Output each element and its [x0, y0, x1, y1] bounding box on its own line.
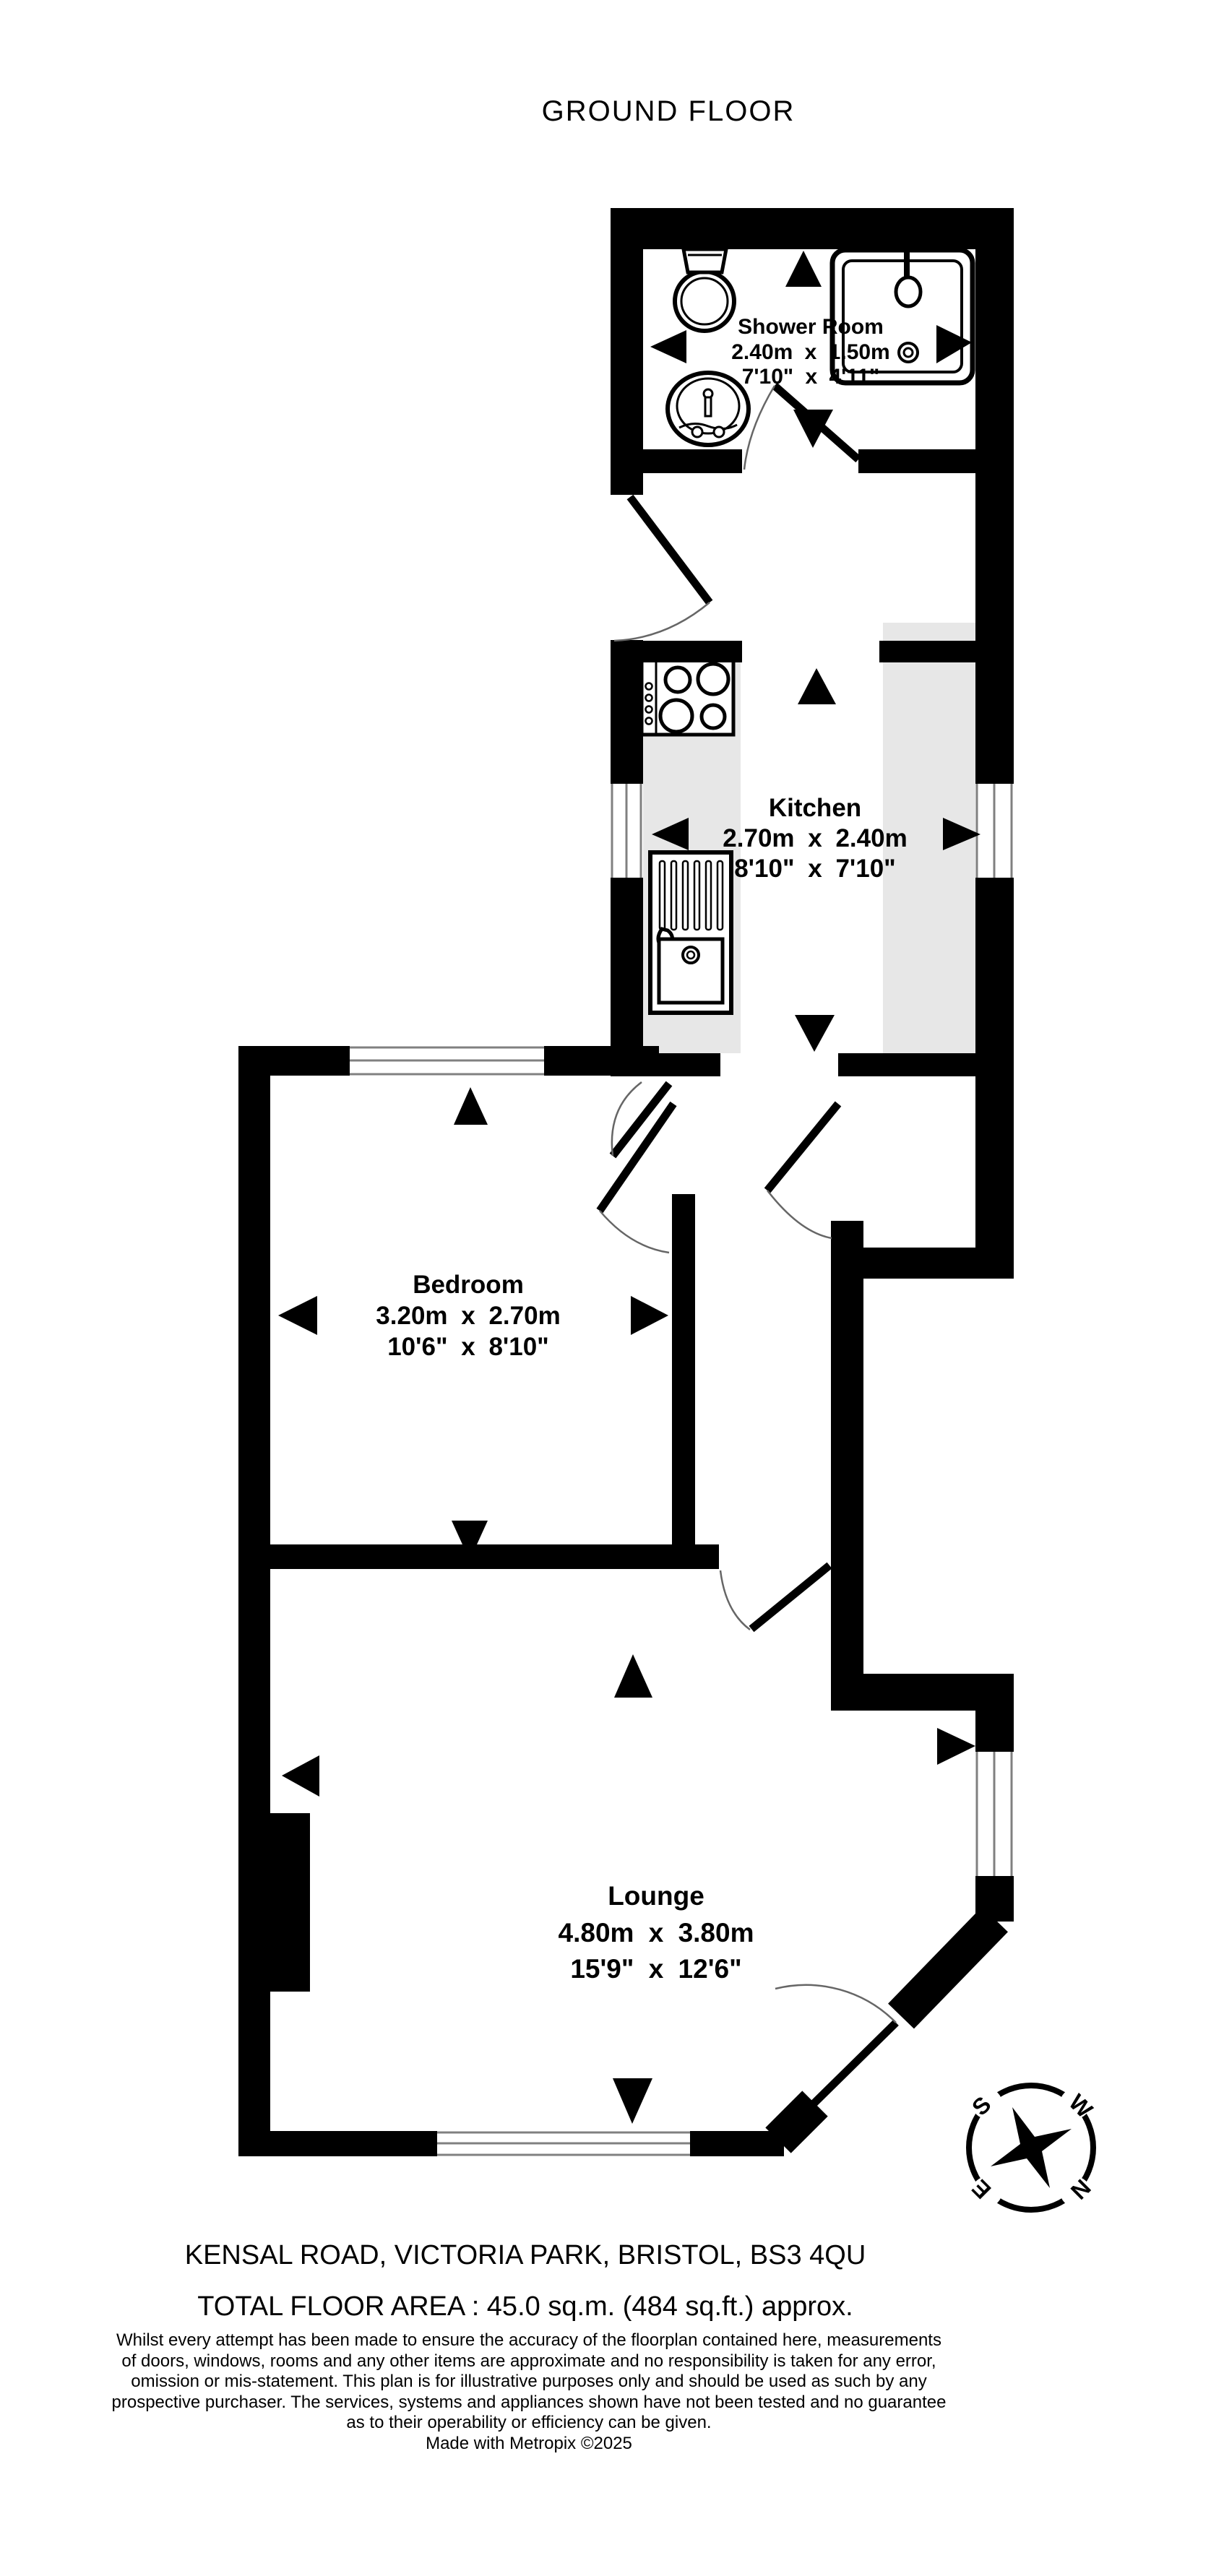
- bedroom-imperial: 10'6" x 8'10": [387, 1333, 549, 1361]
- toilet-icon: [675, 249, 734, 331]
- walls: [238, 208, 1014, 2156]
- lounge-imperial: 15'9" x 12'6": [570, 1954, 741, 1984]
- lounge-metric: 4.80m x 3.80m: [559, 1918, 754, 1948]
- arrow-right-icon: [631, 1296, 668, 1335]
- lounge-door: [720, 1565, 829, 1630]
- bedroom-name: Bedroom: [413, 1271, 524, 1299]
- arrow-left-icon: [282, 1755, 319, 1797]
- metropix-credit: Made with Metropix ©2025: [0, 2434, 1058, 2455]
- arrow-up-icon: [798, 668, 836, 704]
- disclaimer-line: as to their operability or efficiency ca…: [0, 2413, 1058, 2434]
- arrow-right-icon: [937, 1728, 975, 1765]
- disclaimer-line: prospective purchaser. The services, sys…: [0, 2393, 1058, 2413]
- hall-corridor-door: [767, 1104, 838, 1238]
- compass-icon: S W N E: [967, 2086, 1098, 2210]
- arrow-up-icon: [454, 1087, 488, 1125]
- disclaimer-line: of doors, windows, rooms and any other i…: [0, 2351, 1058, 2372]
- floorplan-page: GROUND FLOOR: [0, 0, 1224, 2576]
- arrow-up-icon: [785, 251, 822, 287]
- window-kitchen-right: [975, 784, 1014, 878]
- arrow-left-icon: [650, 330, 686, 363]
- kitchen-imperial: 8'10" x 7'10": [734, 855, 896, 883]
- disclaimer-text: Whilst every attempt has been made to en…: [0, 2330, 1058, 2454]
- lounge-bay-door: [775, 1985, 896, 2112]
- floorplan-drawing: Shower Room 2.40m x 1.50m 7'10" x 4'11" …: [0, 0, 1224, 2576]
- arrow-down-icon: [795, 1015, 835, 1052]
- arrow-up-icon: [614, 1654, 652, 1698]
- window-kitchen-left: [611, 784, 643, 878]
- kitchen-metric: 2.70m x 2.40m: [723, 824, 907, 852]
- total-floor-area: TOTAL FLOOR AREA : 45.0 sq.m. (484 sq.ft…: [0, 2291, 1051, 2322]
- property-address: KENSAL ROAD, VICTORIA PARK, BRISTOL, BS3…: [0, 2240, 1051, 2271]
- arrow-down-icon: [613, 2078, 652, 2124]
- hob-icon: [642, 660, 733, 735]
- window-bedroom: [350, 1046, 544, 1076]
- shower-room-metric: 2.40m x 1.50m: [731, 340, 889, 364]
- side-entrance-door: [614, 497, 710, 641]
- disclaimer-line: omission or mis-statement. This plan is …: [0, 2372, 1058, 2393]
- window-lounge-right: [975, 1752, 1014, 1876]
- kitchen-name: Kitchen: [769, 794, 861, 822]
- kitchen-sink-icon: [650, 852, 731, 1013]
- window-lounge-bottom: [437, 2131, 690, 2156]
- lounge-name: Lounge: [608, 1881, 704, 1911]
- bedroom-metric: 3.20m x 2.70m: [376, 1302, 560, 1330]
- shower-room-door: [744, 386, 858, 470]
- shower-room-name: Shower Room: [738, 315, 884, 339]
- arrow-left-icon: [278, 1296, 317, 1335]
- shower-room-imperial: 7'10" x 4'11": [742, 365, 880, 389]
- basin-icon: [668, 373, 749, 445]
- disclaimer-line: Whilst every attempt has been made to en…: [0, 2330, 1058, 2351]
